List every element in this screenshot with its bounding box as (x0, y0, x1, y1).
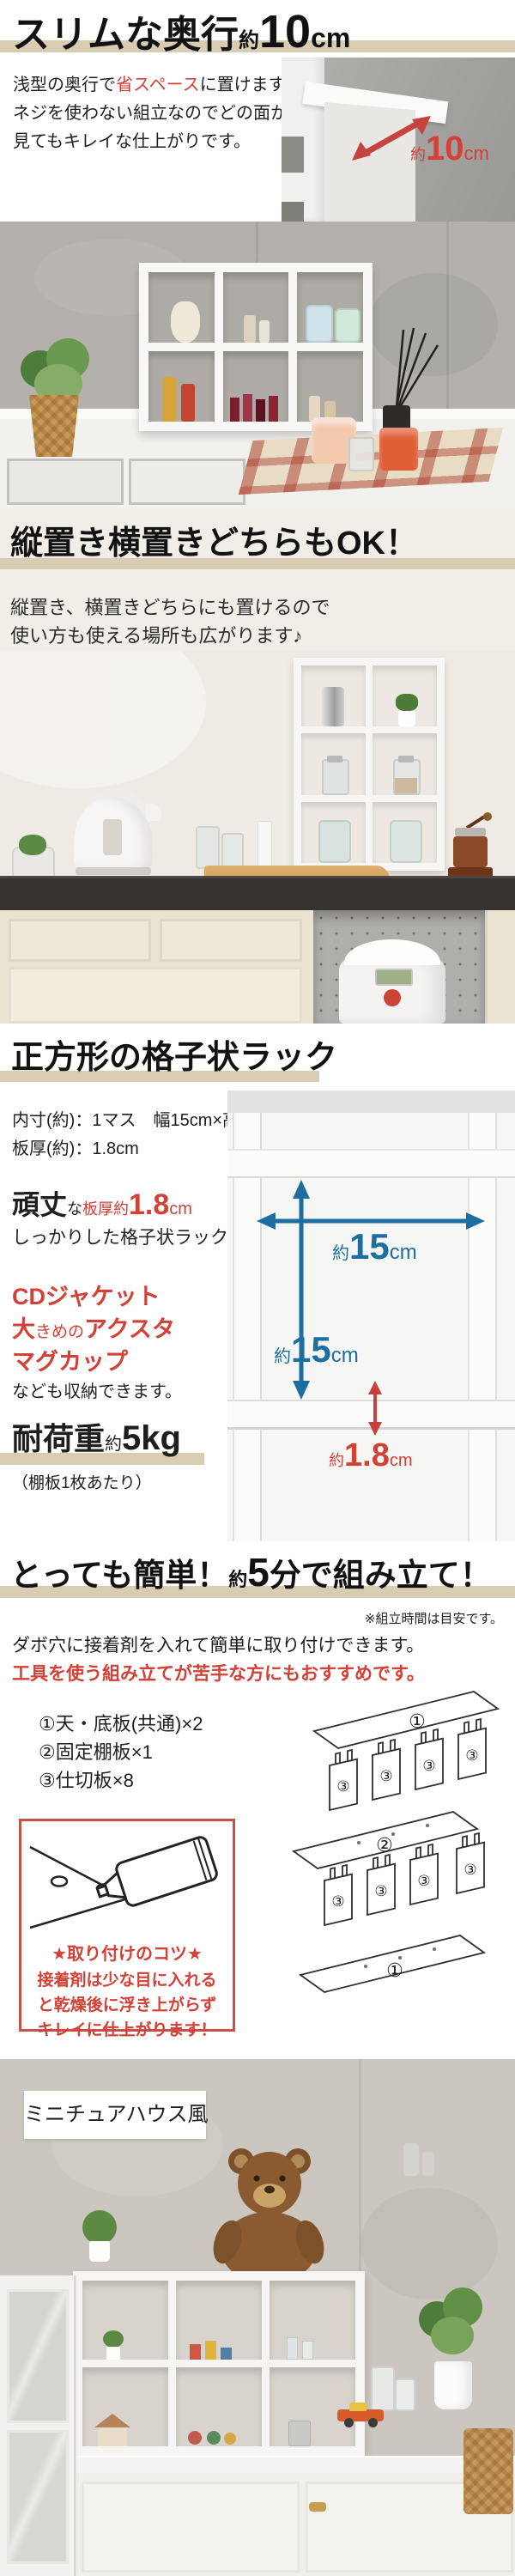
diffuser-reeds (388, 323, 458, 410)
rice-cooker (339, 939, 445, 1024)
shelf-cell (301, 665, 366, 726)
text: cm (390, 1451, 413, 1470)
plant (415, 2282, 486, 2365)
text: 約 (105, 1435, 122, 1454)
shelf-cell (297, 272, 363, 343)
car-cab (349, 2403, 367, 2411)
tip-line: キレイに仕上がります！ (21, 2017, 233, 2040)
storable-item: 大きめのアクスタ (12, 1310, 175, 1344)
diagram-label-divider: ③ (336, 1778, 349, 1795)
photo-miniature-house: ミニチュアハウス風 (0, 2059, 515, 2576)
body-line-red: 工具を使う組み立てが苦手な方にもおすすめです。 (12, 1660, 425, 1686)
caption-text: ミニチュアハウス風 (24, 2091, 206, 2139)
heading-slim-depth: スリムな奥行約10cm (12, 9, 350, 55)
heading-square-grid: 正方形の格子状ラック (11, 1042, 337, 1074)
sturdy-sub: しっかりした格子状ラック (12, 1224, 228, 1249)
aroma-pot (171, 301, 200, 343)
nail-polish (269, 396, 278, 422)
diagram-label-divider: ③ (465, 1747, 478, 1764)
storable-note: なども収納できます。 (12, 1377, 182, 1402)
bottle (162, 377, 176, 422)
section-grid-specs: 正方形の格子状ラック 内寸(約)：1マス 幅15cm×高さ15cm 板厚(約)：… (0, 1024, 515, 1546)
drawer (160, 919, 302, 962)
dimension-diagram: 約15cm 約15cm 約1.8cm (227, 1091, 515, 1541)
mini-tin (288, 2421, 311, 2446)
cooker-button (384, 989, 401, 1006)
text: cm (464, 143, 489, 164)
text: スリムな奥行 (12, 14, 239, 56)
text: 5 (247, 1550, 270, 1595)
grid-shelf (73, 2271, 365, 2456)
text: 約 (228, 1569, 247, 1590)
grid-shelf-vertical (294, 658, 445, 871)
countertop (0, 876, 515, 913)
shelf-cell (148, 351, 215, 422)
shelf-cell (301, 802, 366, 863)
width-label: 約15cm (332, 1226, 417, 1267)
photo-kitchen (0, 651, 515, 1024)
text: な (67, 1200, 82, 1218)
parts-list-item: ①天・底板(共通)×2 (39, 1709, 203, 1736)
storable-item: マグカップ (12, 1343, 128, 1376)
cooker-lcd (375, 969, 413, 986)
shelf-cell (223, 351, 289, 422)
decor (0, 651, 206, 788)
spray-bottle (257, 821, 272, 867)
load-line: 耐荷重約5kg (12, 1414, 181, 1459)
body-line: ネジを使わない組立なのでどの面から (13, 99, 305, 124)
text: 15 (349, 1226, 390, 1267)
text: cm (390, 1241, 417, 1264)
mason-jar (318, 820, 351, 863)
text-red: アクスタ (84, 1316, 175, 1342)
diagram-label-divider: ③ (374, 1883, 387, 1899)
text: 浅型の奥行で (13, 76, 116, 94)
load-note: （棚板1枚あたり） (12, 1470, 152, 1493)
text-red: 大 (12, 1316, 35, 1342)
toy-block (221, 2348, 232, 2360)
nail-polish (230, 398, 239, 422)
toy-figure (207, 2431, 221, 2445)
cooker-lid (344, 939, 440, 965)
mini-pot (106, 2347, 120, 2360)
text: 耐荷重 (12, 1421, 105, 1456)
kettle-base (76, 867, 151, 875)
shelf-open-cell (282, 137, 304, 173)
shelf-cell (270, 2281, 355, 2360)
text: 分で組み立て！ (270, 1558, 492, 1593)
exploded-assembly-diagram: ① ② ① ③ ③ ③ ③ ③ ③ ③ ③ (282, 1683, 512, 2035)
mill-body (453, 836, 488, 867)
bottle (181, 384, 195, 422)
glass-jar (335, 308, 360, 343)
product-page: スリムな奥行約10cm 浅型の奥行で省スペースに置けます。 ネジを使わない組立な… (0, 0, 515, 2576)
storable-item: CDジャケット (12, 1278, 161, 1311)
text: 5kg (122, 1419, 181, 1457)
text: 約 (239, 29, 259, 52)
body-line: 浅型の奥行で省スペースに置けます。 (13, 70, 301, 95)
diagram-label-mid: ② (376, 1834, 393, 1856)
shelf-cell (373, 802, 437, 863)
shelf-cell (148, 272, 215, 343)
glass-jar (306, 305, 333, 343)
shelf-cell (176, 2281, 262, 2360)
heading-assembly: とっても簡単！約5分で組み立て！ (10, 1552, 492, 1592)
car-wheel (344, 2418, 354, 2427)
jar (196, 826, 220, 869)
text: 10 (259, 6, 311, 58)
drawer (82, 2482, 300, 2573)
plant (82, 2210, 117, 2253)
plant-pot (89, 2241, 110, 2262)
mini-roof (94, 2414, 130, 2427)
text: 約 (410, 146, 426, 163)
text: 頑丈 (12, 1189, 67, 1220)
parts-list-item: ③仕切板×8 (39, 1765, 134, 1793)
jar-lid (398, 756, 414, 762)
photo-shelf-lifestyle (0, 222, 515, 508)
text: cm (331, 1344, 359, 1367)
diagram-label-divider: ③ (331, 1893, 344, 1910)
kettle-spout (146, 804, 161, 821)
photo-depth-closeup: 約10cm (282, 58, 515, 222)
tip-line: と乾燥後に浮き上がらず (21, 1992, 233, 2015)
text-red: cm (169, 1200, 192, 1218)
mill-hopper (455, 828, 486, 836)
canister (322, 687, 344, 726)
plant-pot (434, 2361, 472, 2409)
glass-pane (7, 2430, 69, 2564)
section-slim-depth: スリムな奥行約10cm 浅型の奥行で省スペースに置けます。 ネジを使わない組立な… (0, 0, 515, 222)
diagram-label-divider: ③ (379, 1768, 392, 1784)
glass-bottle (422, 2152, 434, 2176)
tip-title: ★取り付けのコツ★ (21, 1940, 233, 1965)
jar-lid (327, 756, 342, 762)
toy-figure (188, 2431, 202, 2445)
candle (379, 428, 418, 471)
text: 約 (274, 1347, 291, 1366)
glass-pane (7, 2289, 69, 2423)
decor (431, 2317, 474, 2354)
shelf-cell (223, 272, 289, 343)
body-line: 使い方も使える場所も広がります♪ (10, 621, 302, 648)
text-red: 1.8 (129, 1188, 169, 1221)
bottle (244, 315, 256, 343)
basket (463, 2428, 513, 2514)
toy-car (337, 2403, 384, 2428)
diagram-label-bottom: ① (386, 1959, 403, 1981)
countertop (0, 2456, 515, 2475)
text: 15 (291, 1329, 331, 1370)
nail-polish (256, 399, 265, 422)
glass-cup (348, 437, 374, 471)
coffee-mill (448, 812, 493, 879)
shelf-cell (176, 2367, 262, 2446)
glass-jar (322, 759, 349, 795)
plant-pot (398, 711, 415, 726)
parts-list-item: ②固定棚板×1 (39, 1737, 153, 1765)
cabinet-right (485, 910, 515, 1024)
text-red: きめの (35, 1323, 84, 1341)
mini-house (98, 2426, 127, 2446)
glass-cabinet (0, 2275, 76, 2576)
jar (221, 833, 244, 869)
assembly-note: ※組立時間は目安です。 (365, 1609, 503, 1627)
shelf-cell (82, 2367, 168, 2446)
section-orientation: 縦置き横置きどちらもOK！ 縦置き、横置きどちらにも置けるので 使い方も使える場… (0, 508, 515, 651)
text-red: 板厚約 (82, 1200, 129, 1218)
depth-label: 約10cm (410, 130, 489, 168)
kettle-gauge (103, 819, 122, 855)
shelf-cell (373, 733, 437, 794)
text: 1.8 (344, 1437, 390, 1473)
diagram-label-top: ① (409, 1710, 426, 1732)
section-assembly: とっても簡単！約5分で組み立て！ ※組立時間は目安です。 ダボ穴に接着剤を入れて… (0, 1546, 515, 2059)
glass-jar (395, 2379, 415, 2411)
sturdy-line: 頑丈な板厚約1.8cm (12, 1183, 192, 1223)
spec-line: 板厚(約)：1.8cm (12, 1134, 139, 1159)
text: 約 (329, 1452, 344, 1469)
toy-figure (224, 2433, 236, 2445)
drawer (9, 919, 151, 962)
text-red: 省スペース (116, 76, 200, 94)
cabinet-door (129, 459, 245, 505)
mini-bottle (287, 2337, 298, 2360)
shelf-cell (82, 2281, 168, 2360)
text: 10 (426, 130, 464, 167)
shelf-cell (373, 665, 437, 726)
tip-box: ★取り付けのコツ★ 接着剤は少な目に入れる と乾燥後に浮き上がらず キレイに仕上… (19, 1819, 235, 2032)
decor (82, 2210, 117, 2245)
toy-block (205, 2341, 216, 2360)
brass-handle (309, 2502, 326, 2512)
shelf-cell (301, 733, 366, 794)
nail-polish (243, 394, 252, 422)
plant (19, 835, 46, 855)
mini-bottle (302, 2341, 313, 2360)
body-line: ダボ穴に接着剤を入れて簡単に取り付けできます。 (12, 1631, 424, 1657)
height-label: 約15cm (274, 1329, 359, 1370)
diagram-label-divider: ③ (417, 1873, 430, 1889)
toy-block (190, 2344, 201, 2360)
bottle (259, 320, 270, 343)
glue-tube-illustration (25, 1825, 229, 1935)
mini-plant (103, 2330, 124, 2348)
body-line: 縦置き、横置きどちらにも置けるので (10, 592, 330, 620)
electric-kettle (69, 785, 163, 876)
tip-line: 接着剤は少な目に入れる (21, 1967, 233, 1990)
text: cm (311, 22, 350, 53)
grid-shelf (139, 263, 373, 431)
cabinet-door (9, 967, 302, 1024)
cabinet-front (0, 2473, 515, 2576)
body-line: 見てもキレイな仕上がりです。 (13, 127, 251, 152)
heading-orientation: 縦置き横置きどちらもOK！ (10, 527, 418, 560)
diagram-label-divider: ③ (463, 1862, 476, 1878)
car-wheel (368, 2418, 378, 2427)
thickness-label: 約1.8cm (329, 1437, 413, 1474)
glass-bottle (403, 2143, 419, 2176)
cabinet-left (0, 910, 313, 1024)
glass-jar (393, 759, 421, 795)
mason-jar (390, 820, 422, 863)
shelf-cell (297, 351, 363, 422)
succulent (396, 694, 418, 711)
diagram-label-divider: ③ (422, 1758, 435, 1774)
shelf-open-cell (282, 202, 304, 222)
text: 約 (332, 1244, 349, 1263)
teddy-bear (202, 2141, 339, 2278)
text: とっても簡単！ (10, 1558, 228, 1593)
cabinet-door (7, 459, 124, 505)
caption-label: ミニチュアハウス風 (24, 2091, 206, 2139)
